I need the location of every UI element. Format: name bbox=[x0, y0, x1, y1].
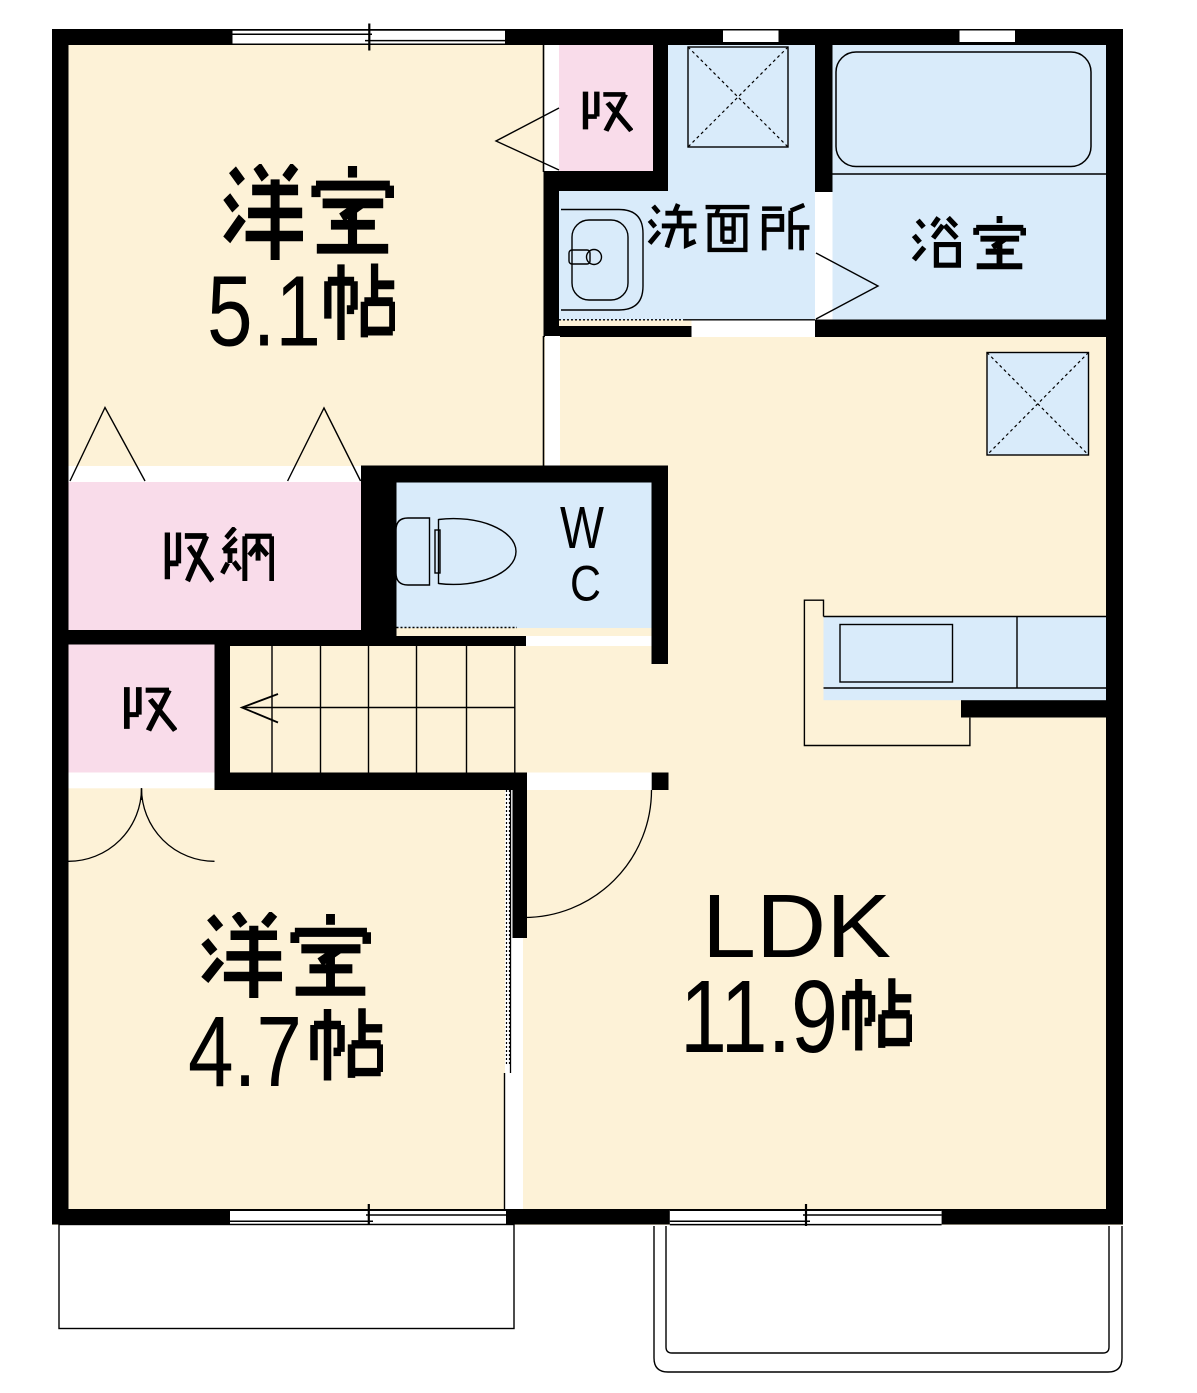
svg-text:4.7: 4.7 bbox=[188, 996, 302, 1108]
svg-text:C: C bbox=[570, 556, 601, 612]
svg-text:11.9: 11.9 bbox=[680, 959, 838, 1074]
svg-text:5.1: 5.1 bbox=[207, 256, 321, 368]
svg-text:W: W bbox=[560, 495, 604, 561]
